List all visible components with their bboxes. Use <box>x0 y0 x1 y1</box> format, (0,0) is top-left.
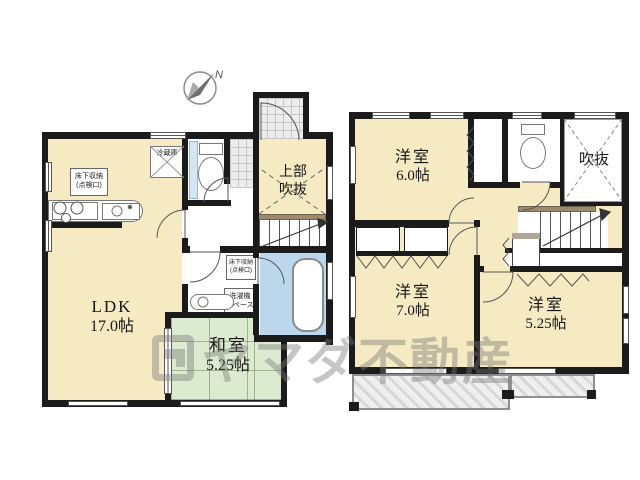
window <box>327 262 333 300</box>
genkan-tataki <box>230 139 253 188</box>
wall-segment <box>253 92 259 139</box>
window <box>385 368 447 374</box>
wall-segment <box>468 182 520 188</box>
wall-segment <box>185 132 255 139</box>
label-upper-void-line2: 吹抜 <box>279 183 307 198</box>
wall-segment <box>502 119 508 182</box>
label-bedroom2-name: 洋室 <box>368 283 458 302</box>
label-upper-void: 上部 吹抜 <box>264 164 322 199</box>
window <box>430 112 464 119</box>
label-ldk-name: LDK <box>64 297 160 317</box>
wall-segment <box>303 92 309 139</box>
wall-segment <box>480 266 484 272</box>
underfloor-storage-washroom: 床下収納 (点検口) <box>226 255 256 280</box>
label-bedroom1: 洋室 6.0帖 <box>368 148 458 185</box>
toilet1-tank <box>199 143 223 155</box>
underfloor-storage-kitchen-line1: 床下収納 <box>75 173 103 182</box>
window <box>150 132 186 139</box>
underfloor-storage-kitchen-line2: (点検口) <box>76 182 102 191</box>
wall-segment <box>349 220 449 227</box>
wall-segment <box>165 394 171 400</box>
stairs-second-floor <box>540 212 608 248</box>
wall-segment <box>224 139 230 184</box>
wall-segment <box>253 246 259 258</box>
stairs-handrail <box>518 206 596 212</box>
hall-closet-shelf <box>512 233 540 239</box>
compass-icon: N <box>184 69 223 104</box>
toilet1-counter <box>189 141 198 199</box>
wall-segment <box>281 342 287 407</box>
closet-bedroom1 <box>474 119 502 182</box>
label-washitsu-size: 5.25帖 <box>180 356 276 375</box>
wall-segment <box>253 139 259 246</box>
window <box>180 401 280 406</box>
wall-segment <box>220 246 333 253</box>
toilet2-bowl <box>520 137 546 169</box>
window <box>350 146 356 184</box>
wall-segment <box>540 248 628 253</box>
label-ldk: LDK 17.0帖 <box>64 297 160 337</box>
balcony <box>352 374 510 410</box>
balcony-east <box>510 374 595 398</box>
kitchen-half-wall <box>48 222 122 228</box>
toilet2-tank <box>521 124 545 135</box>
underfloor-storage-kitchen: 床下収納 (点検口) <box>70 168 108 196</box>
label-bedroom2: 洋室 7.0帖 <box>368 283 458 320</box>
entrance-porch <box>259 98 303 139</box>
washbasin <box>190 294 234 310</box>
label-bedroom3-name: 洋室 <box>502 296 590 315</box>
window <box>512 112 542 119</box>
wall-segment <box>182 132 188 210</box>
wall-segment <box>253 92 309 98</box>
underfloor-storage-washroom-line2: (点検口) <box>230 268 252 276</box>
window <box>45 220 52 252</box>
floor-plan: 冷蔵庫 床下収納 (点検口) 床下収納 (点検口) 洗濯機 スペース <box>0 0 640 480</box>
label-bedroom3: 洋室 5.25帖 <box>502 296 590 333</box>
window <box>350 276 356 318</box>
sliding-door <box>164 328 172 394</box>
wall-segment <box>468 119 474 185</box>
label-bedroom2-size: 7.0帖 <box>368 302 458 320</box>
closet-front-bar <box>356 251 448 256</box>
balcony-post <box>502 390 514 399</box>
wall-segment <box>560 202 628 206</box>
label-void: 吹抜 <box>568 151 620 170</box>
balcony-post <box>349 402 359 411</box>
label-ldk-size: 17.0帖 <box>64 317 160 336</box>
underfloor-storage-washroom-line1: 床下収納 <box>229 260 253 268</box>
window <box>623 318 629 344</box>
label-bedroom1-name: 洋室 <box>368 148 458 167</box>
window <box>68 401 128 406</box>
stairs-handrail <box>258 214 326 220</box>
compass-north-label: N <box>215 69 223 81</box>
wall-segment <box>510 266 628 272</box>
closet-bedroom2-left <box>356 227 400 253</box>
window <box>574 112 616 119</box>
label-washitsu-name: 和室 <box>180 336 276 356</box>
wall-segment <box>505 248 512 253</box>
wall-segment <box>560 119 564 206</box>
wall-segment <box>165 318 171 328</box>
kitchen-sink <box>102 203 140 220</box>
wall-segment <box>326 132 333 345</box>
bathtub <box>292 258 324 332</box>
wall-segment <box>182 246 190 253</box>
stove <box>52 202 98 220</box>
toilet1-bowl <box>198 157 224 191</box>
wall-segment <box>474 255 480 374</box>
label-bedroom1-size: 6.0帖 <box>368 167 458 185</box>
window <box>372 112 410 119</box>
wall-segment <box>165 312 259 318</box>
label-upper-void-line1: 上部 <box>279 165 307 180</box>
label-bedroom3-size: 5.25帖 <box>502 315 590 333</box>
wall-segment <box>253 284 259 335</box>
window <box>623 286 629 314</box>
label-washitsu: 和室 5.25帖 <box>180 336 276 376</box>
closet-bedroom2-right <box>404 227 448 253</box>
wall-segment <box>474 220 480 227</box>
window <box>327 166 333 200</box>
window <box>498 368 556 374</box>
wall-segment <box>182 284 188 312</box>
window <box>45 162 52 192</box>
stairs-first-floor <box>259 220 326 246</box>
fridge-label: 冷蔵庫 <box>150 148 184 158</box>
wall-segment <box>188 200 231 206</box>
balcony-post <box>587 390 596 399</box>
